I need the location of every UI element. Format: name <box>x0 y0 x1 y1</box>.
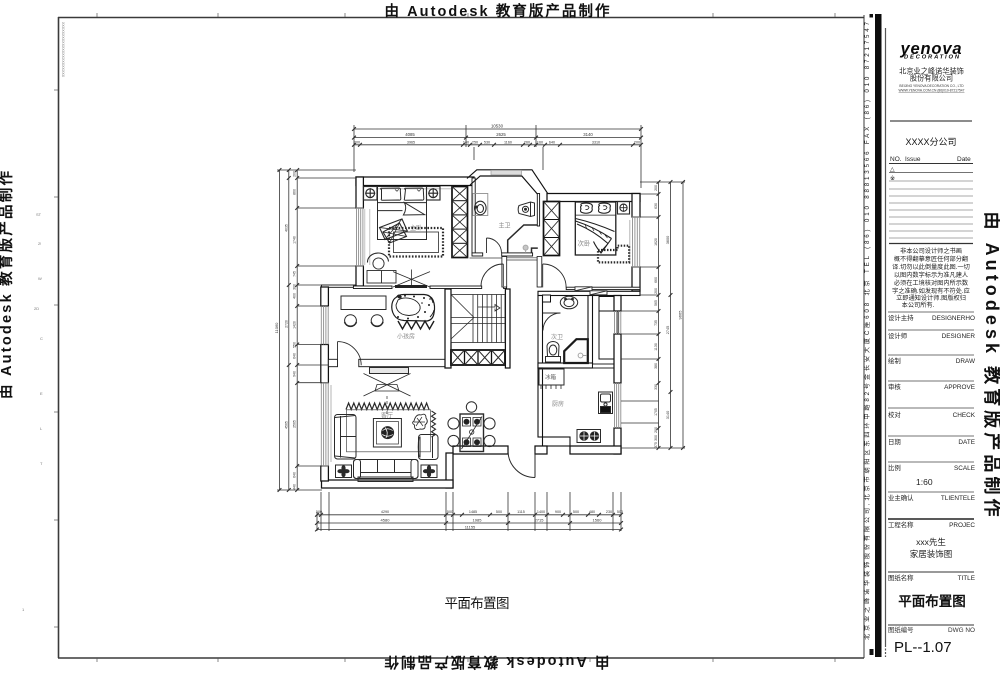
svg-text:10530: 10530 <box>491 124 504 129</box>
svg-text:2D: 2D <box>34 306 39 311</box>
svg-text:2745: 2745 <box>666 326 670 334</box>
svg-text:比例: 比例 <box>888 463 901 472</box>
svg-text:400: 400 <box>293 293 297 299</box>
svg-text:500: 500 <box>617 510 623 514</box>
svg-text:DESIGNER: DESIGNER <box>942 333 976 340</box>
svg-text:Issue: Issue <box>905 156 921 163</box>
svg-text:1740: 1740 <box>293 236 297 244</box>
svg-text:DECORATION: DECORATION <box>904 55 960 61</box>
svg-text:480: 480 <box>589 510 595 514</box>
svg-text:440: 440 <box>293 484 297 490</box>
svg-text:300: 300 <box>654 435 658 441</box>
svg-text:SCALE: SCALE <box>954 465 975 472</box>
svg-text:1:60: 1:60 <box>916 477 933 487</box>
svg-text:200: 200 <box>654 427 658 433</box>
svg-text:260: 260 <box>524 140 530 144</box>
svg-text:W: W <box>38 276 42 281</box>
svg-text:1620: 1620 <box>654 238 658 246</box>
svg-text:DESIGNERHO: DESIGNERHO <box>932 315 975 322</box>
svg-text:2720: 2720 <box>284 320 288 328</box>
svg-text:绘制: 绘制 <box>888 356 901 365</box>
svg-text:小孩房: 小孩房 <box>397 333 415 341</box>
svg-text:550: 550 <box>293 342 297 348</box>
svg-text:平面布置图: 平面布置图 <box>898 593 966 609</box>
svg-text:PROJEC: PROJEC <box>949 522 975 529</box>
svg-text:4580: 4580 <box>381 517 391 522</box>
svg-text:△: △ <box>890 167 895 173</box>
svg-text:BEIJING YENOVA DECORATION CO.,: BEIJING YENOVA DECORATION CO., LTD <box>899 84 964 88</box>
svg-text:250: 250 <box>472 140 478 144</box>
svg-text:1560: 1560 <box>593 517 603 522</box>
svg-text:11155: 11155 <box>465 524 476 529</box>
svg-text:L: L <box>40 426 43 431</box>
svg-text:860: 860 <box>293 189 297 195</box>
svg-text:必须在工境核对图内所示数: 必须在工境核对图内所示数 <box>894 279 969 287</box>
svg-text:平面布置图: 平面布置图 <box>445 596 510 611</box>
svg-text:3310: 3310 <box>592 140 600 144</box>
svg-text:735: 735 <box>654 320 658 326</box>
svg-text:本公司所有.: 本公司所有. <box>902 301 935 309</box>
svg-text:1985: 1985 <box>473 517 483 522</box>
svg-text:1: 1 <box>22 607 25 612</box>
svg-text:图纸编号: 图纸编号 <box>888 625 914 634</box>
svg-text:565: 565 <box>654 300 658 306</box>
svg-text:300: 300 <box>293 284 297 290</box>
svg-text:字之准确.如发现有不符处.应: 字之准确.如发现有不符处.应 <box>892 287 970 295</box>
svg-text:业主确认: 业主确认 <box>888 493 914 502</box>
svg-text:1115: 1115 <box>517 510 525 514</box>
svg-text:DATE: DATE <box>958 439 975 446</box>
svg-text:2565: 2565 <box>293 420 297 428</box>
svg-text:工程名称: 工程名称 <box>888 520 914 529</box>
svg-text:660: 660 <box>654 277 658 283</box>
svg-text:股份有限公司: 股份有限公司 <box>910 74 953 83</box>
svg-text:640: 640 <box>293 353 297 359</box>
svg-text:4035: 4035 <box>284 224 288 232</box>
svg-text:C: C <box>40 336 43 341</box>
svg-text:3965: 3965 <box>407 140 415 144</box>
svg-text:APPROVE: APPROVE <box>944 384 975 391</box>
svg-text:640: 640 <box>549 140 555 144</box>
svg-text:940: 940 <box>293 371 297 377</box>
svg-text:XXXXXXXXXXXXXXXXXXXXXXX: XXXXXXXXXXXXXXXXXXXXXXX <box>61 22 65 78</box>
svg-text:1420: 1420 <box>293 321 297 329</box>
svg-text:概不得翻摹意匠任何部分翻: 概不得翻摹意匠任何部分翻 <box>894 255 968 263</box>
svg-text:160: 160 <box>537 140 543 144</box>
svg-text:由 Autodesk 教育版产品制作: 由 Autodesk 教育版产品制作 <box>982 212 1000 517</box>
svg-text:200: 200 <box>354 140 360 144</box>
svg-text:4290: 4290 <box>381 510 389 514</box>
svg-text:3600: 3600 <box>666 236 670 244</box>
svg-text:Date: Date <box>957 156 971 163</box>
svg-text:2!: 2! <box>38 241 41 246</box>
svg-text:XXXX分公司: XXXX分公司 <box>905 137 956 147</box>
svg-text:译.切勿以此倒量度此图.一切: 译.切勿以此倒量度此图.一切 <box>892 263 970 271</box>
svg-text:230: 230 <box>606 510 612 514</box>
svg-text:2625: 2625 <box>496 132 506 137</box>
svg-text:T: T <box>40 461 43 466</box>
svg-text:xxx先生: xxx先生 <box>916 537 946 547</box>
svg-text:1160: 1160 <box>504 140 512 144</box>
svg-text:NO.: NO. <box>890 156 902 163</box>
svg-text:由 Autodesk 教育版产品制作: 由 Autodesk 教育版产品制作 <box>384 653 610 671</box>
svg-text:745: 745 <box>293 271 297 277</box>
svg-text:DWG NO: DWG NO <box>948 627 975 634</box>
svg-text:厨房: 厨房 <box>552 400 564 408</box>
svg-text:200: 200 <box>293 171 297 177</box>
svg-text:冰箱: 冰箱 <box>545 373 557 381</box>
svg-text:2715: 2715 <box>535 517 545 522</box>
svg-text:由 Autodesk 教育版产品制作: 由 Autodesk 教育版产品制作 <box>0 171 15 400</box>
svg-text:500: 500 <box>496 510 502 514</box>
svg-text:北京业之峰诺华装饰股份有限公司,北京市朝阳区东四环中路82号: 北京业之峰诺华装饰股份有限公司,北京市朝阳区东四环中路82号金长安大厦C座608… <box>863 21 871 640</box>
svg-text:家居装饰图: 家居装饰图 <box>910 549 953 559</box>
svg-text:ST: ST <box>36 212 42 217</box>
svg-text:9665: 9665 <box>678 310 683 320</box>
svg-text:次卫: 次卫 <box>551 333 563 341</box>
svg-text:1130: 1130 <box>654 343 658 351</box>
svg-text:CHECK: CHECK <box>953 412 976 419</box>
svg-text:4085: 4085 <box>405 132 415 137</box>
svg-text:WWW.YENOVA.COM.CN (86)010-872: WWW.YENOVA.COM.CN (86)010-87217547 <box>899 89 965 93</box>
svg-text:4565: 4565 <box>284 421 288 429</box>
svg-text:11060: 11060 <box>274 322 279 334</box>
svg-text:校对: 校对 <box>888 410 901 419</box>
svg-text:500: 500 <box>573 510 579 514</box>
svg-text:次卧: 次卧 <box>578 239 592 248</box>
svg-text:3140: 3140 <box>583 132 593 137</box>
svg-text:以图内数字标示为准凡建人: 以图内数字标示为准凡建人 <box>894 271 968 279</box>
svg-text:500: 500 <box>447 510 453 514</box>
svg-text:图纸名称: 图纸名称 <box>888 573 914 582</box>
svg-text:380: 380 <box>654 363 658 369</box>
svg-text:日期: 日期 <box>888 438 901 446</box>
svg-text:立即通知设计师.图版权归: 立即通知设计师.图版权归 <box>896 294 966 302</box>
svg-text:E: E <box>40 391 43 396</box>
svg-text:TITLE: TITLE <box>958 575 975 582</box>
svg-text:1400: 1400 <box>537 510 545 514</box>
svg-text:1485: 1485 <box>469 510 477 514</box>
svg-text:200: 200 <box>654 288 658 294</box>
svg-text:140: 140 <box>463 140 469 144</box>
svg-text:审核: 审核 <box>888 382 901 391</box>
svg-text:非本公司设计师之书画: 非本公司设计师之书画 <box>900 247 962 255</box>
svg-text:900: 900 <box>555 510 561 514</box>
svg-text:TLIENTELE: TLIENTELE <box>941 495 975 502</box>
svg-text:330: 330 <box>654 384 658 390</box>
svg-text:1705: 1705 <box>654 408 658 416</box>
svg-text:530: 530 <box>484 140 490 144</box>
svg-text:500: 500 <box>316 510 322 514</box>
svg-text:设计师: 设计师 <box>888 331 908 340</box>
svg-text:DRAW: DRAW <box>956 358 976 365</box>
svg-text:设计主持: 设计主持 <box>888 313 914 322</box>
svg-text:200: 200 <box>654 185 658 191</box>
svg-text:640: 640 <box>293 472 297 478</box>
svg-text:主卫: 主卫 <box>499 222 511 230</box>
svg-text:200: 200 <box>634 140 640 144</box>
svg-text:375: 375 <box>654 442 658 448</box>
svg-text:PL--1.07: PL--1.07 <box>894 639 952 656</box>
svg-text:3140: 3140 <box>666 411 670 419</box>
svg-text:630: 630 <box>654 203 658 209</box>
